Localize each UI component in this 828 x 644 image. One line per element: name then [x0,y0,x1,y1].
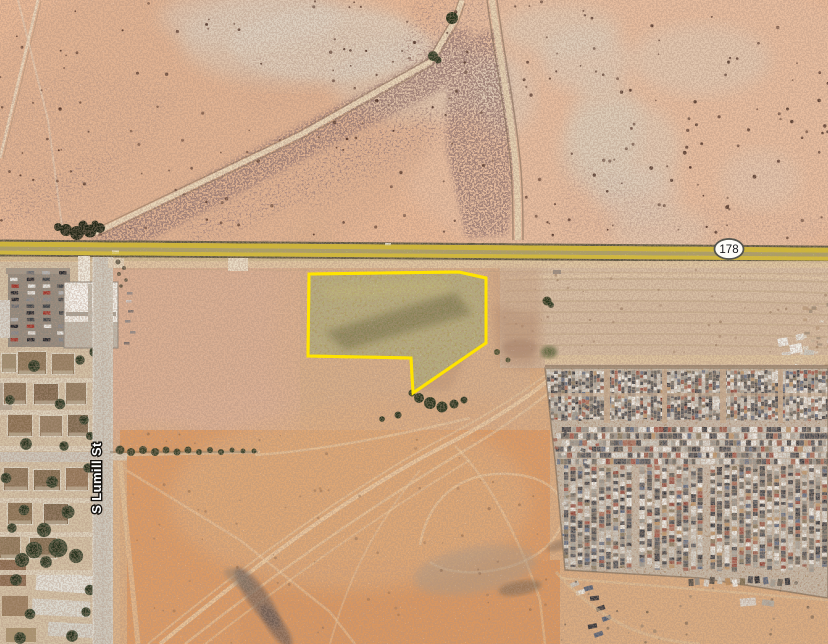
svg-text:S Lumill St: S Lumill St [89,442,104,514]
svg-text:178: 178 [719,244,738,256]
